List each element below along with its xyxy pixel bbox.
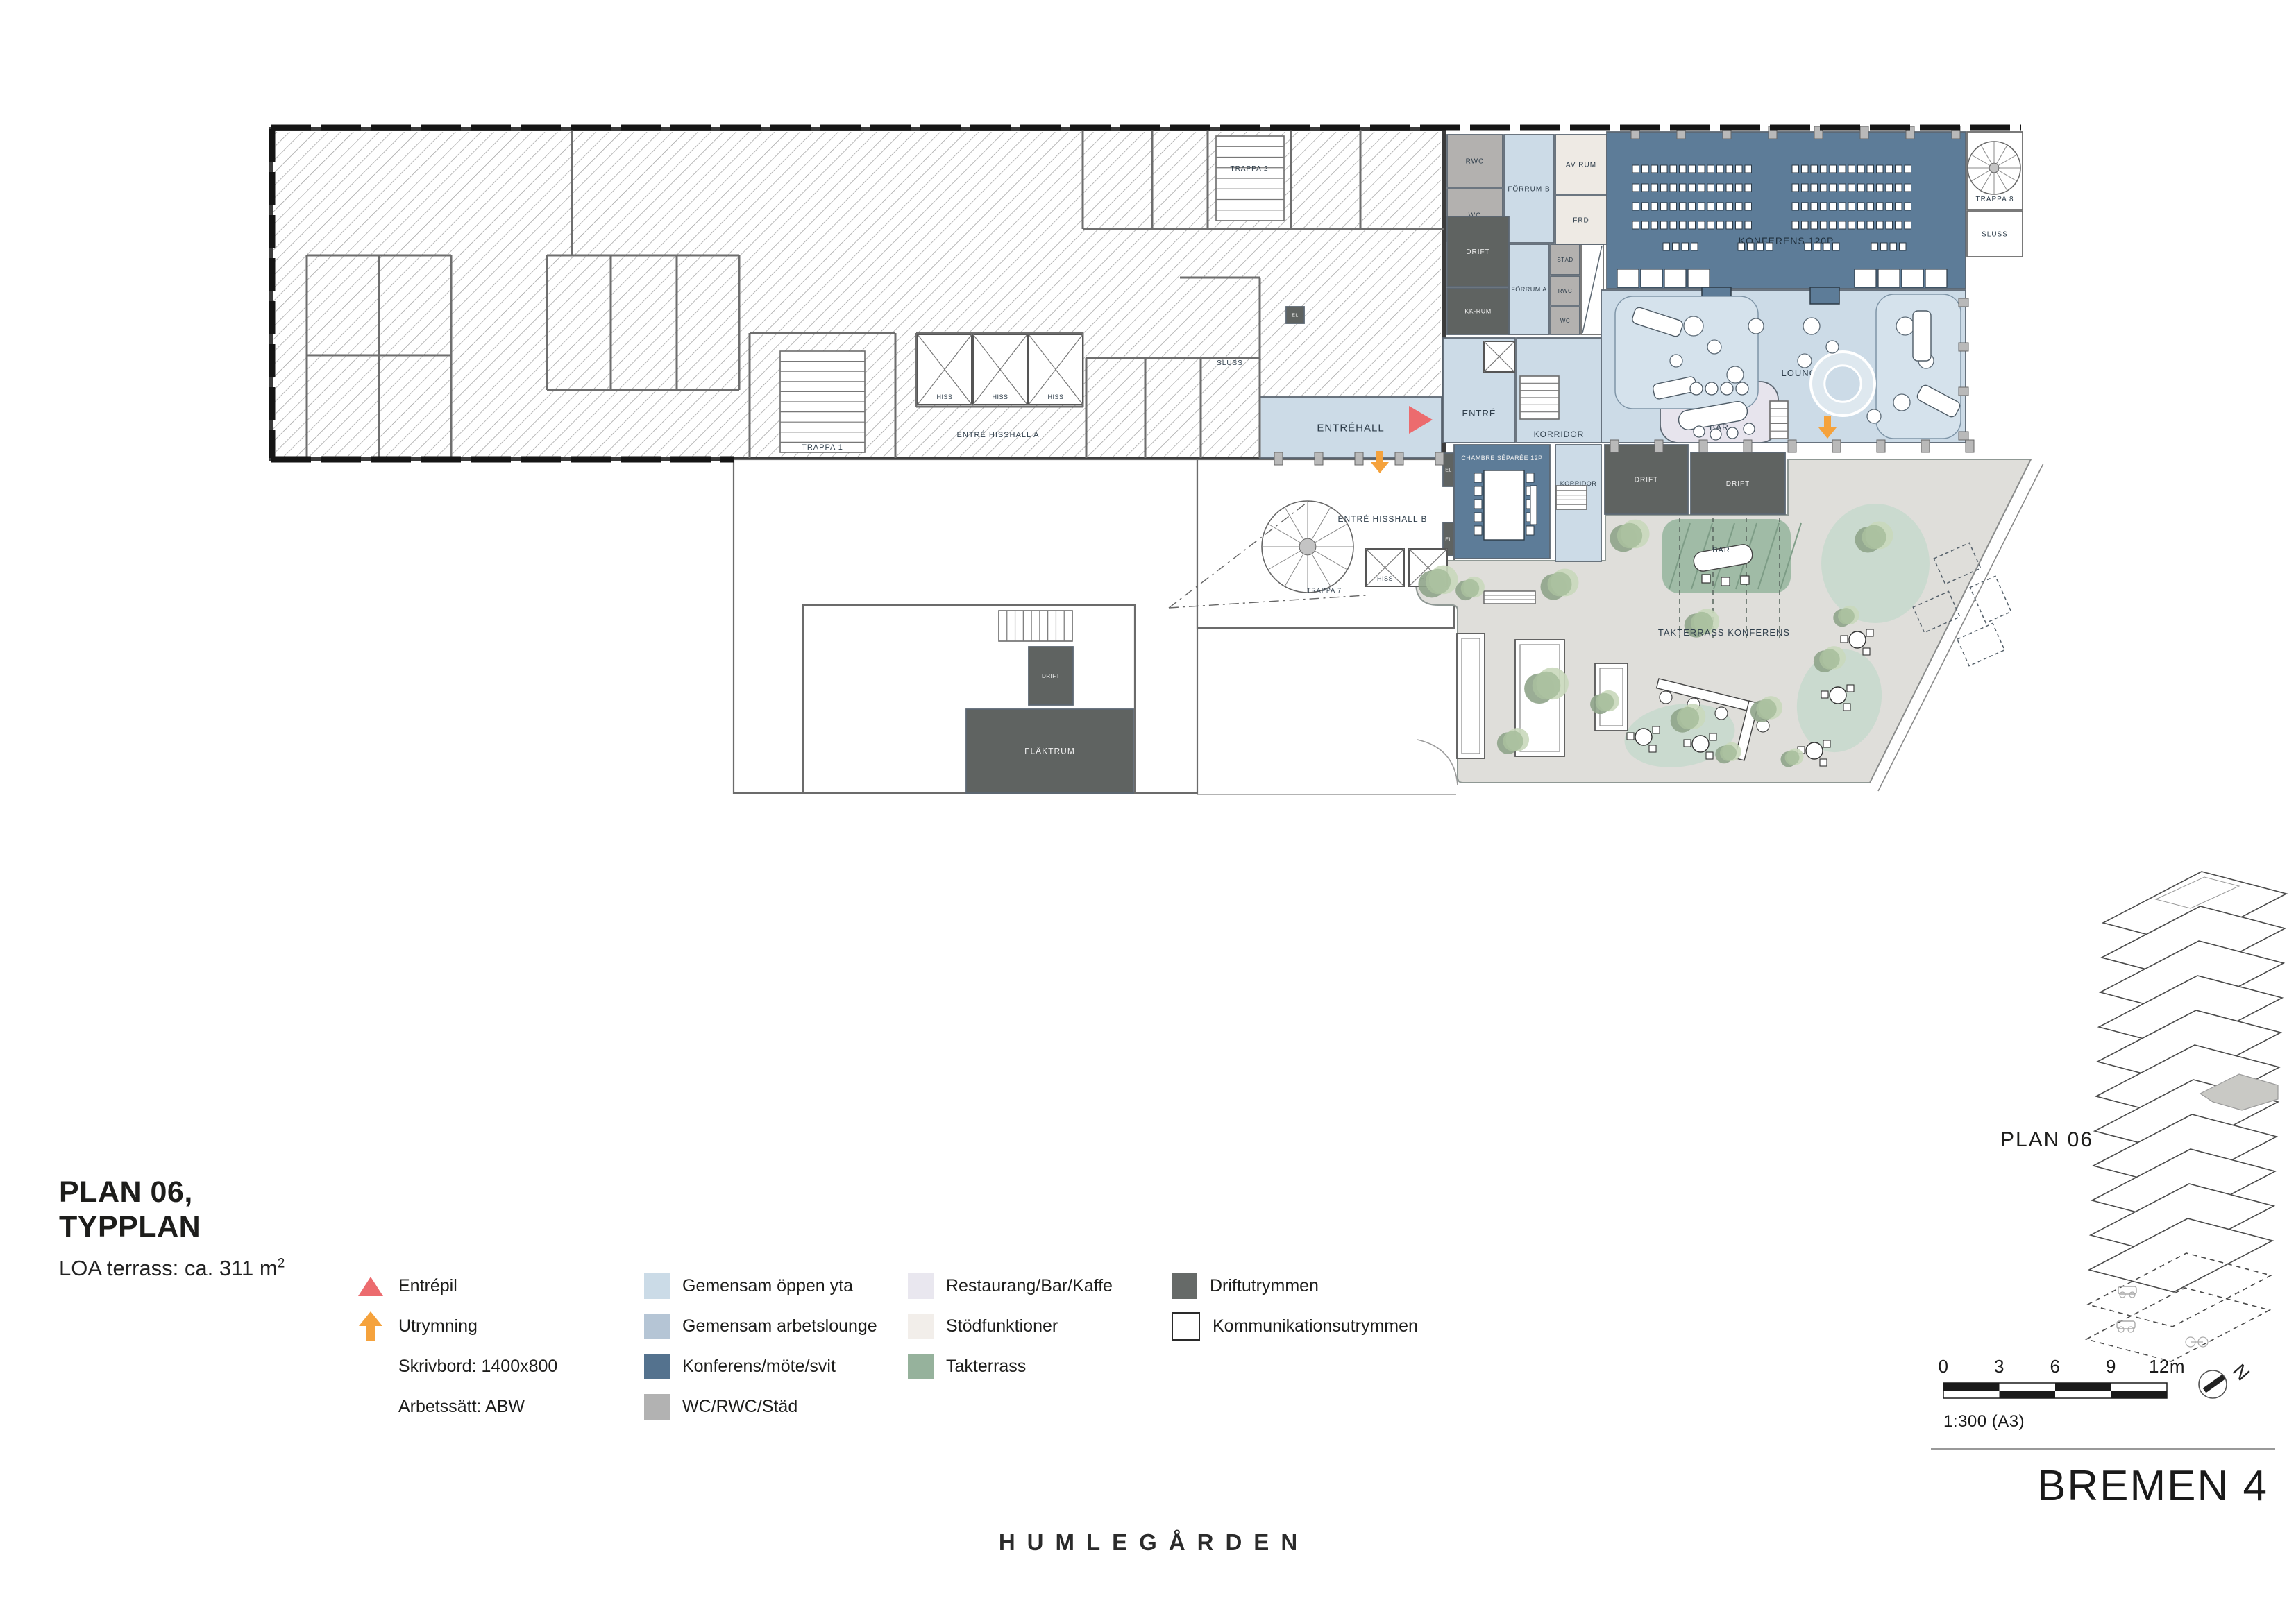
svg-text:WC: WC [1560, 318, 1570, 324]
legend-item-label: Konferens/möte/svit [682, 1357, 836, 1377]
building-stack: PLAN 06 [2000, 872, 2286, 1361]
svg-text:N: N [2229, 1360, 2254, 1385]
svg-text:RWC: RWC [1466, 158, 1485, 166]
svg-text:6: 6 [2050, 1356, 2061, 1377]
svg-text:ENTRÉHALL: ENTRÉHALL [1317, 422, 1384, 434]
legend-categories-3: DriftutrymmenKommunikationsutrymmen [1172, 1266, 1418, 1346]
legend-swatch [908, 1314, 934, 1339]
project-title: BREMEN 4 [2037, 1461, 2268, 1511]
title-block: PLAN 06, TYPPLAN LOA terrass: ca. 311 m2 [59, 1175, 285, 1281]
legend-item: Restaurang/Bar/Kaffe [908, 1266, 1113, 1306]
svg-text:HISS: HISS [1047, 393, 1063, 400]
svg-text:FÖRRUM B: FÖRRUM B [1508, 185, 1550, 194]
legend-item: WC/RWC/Städ [644, 1386, 877, 1427]
svg-text:SLUSS: SLUSS [1217, 359, 1243, 367]
svg-text:TRAPPA 2: TRAPPA 2 [1230, 165, 1268, 173]
svg-text:BAR: BAR [1712, 546, 1730, 554]
svg-text:ENTRÉ HISSHALL B: ENTRÉ HISSHALL B [1338, 513, 1428, 524]
legend-item: Driftutrymmen [1172, 1266, 1418, 1306]
north-arrow: N [2199, 1360, 2254, 1398]
chambre-table [1474, 470, 1537, 540]
plan-sheet: ENTRÉHALLENTRÉKORRIDORFÖRRUM BFÖRRUM ARW… [0, 0, 2296, 1623]
svg-text:EL: EL [1292, 313, 1299, 318]
legend-icon [355, 1391, 386, 1422]
page-title: PLAN 06, TYPPLAN [59, 1175, 285, 1245]
legend-item-label: Takterrass [946, 1357, 1026, 1377]
legend-swatch [644, 1273, 670, 1299]
legend-annotations: EntrépilUtrymningSkrivbord: 1400x800Arbe… [355, 1266, 557, 1427]
brand-logo: HUMLEGÅRDEN [0, 1529, 2296, 1556]
svg-text:DRIFT: DRIFT [1466, 248, 1489, 256]
svg-text:STÄD: STÄD [1557, 257, 1573, 263]
legend-item: Konferens/möte/svit [644, 1346, 877, 1386]
svg-text:TRAPPA 1: TRAPPA 1 [802, 443, 843, 452]
legend-item-label: Restaurang/Bar/Kaffe [946, 1276, 1113, 1296]
legend-item: Skrivbord: 1400x800 [355, 1346, 557, 1386]
legend-item-label: Utrymning [398, 1316, 478, 1336]
svg-text:TAKTERRASS KONFERENS: TAKTERRASS KONFERENS [1658, 627, 1790, 638]
svg-text:PLAN 06: PLAN 06 [2000, 1128, 2093, 1151]
svg-text:EL: EL [1445, 537, 1452, 542]
svg-text:FÖRRUM A: FÖRRUM A [1511, 286, 1547, 293]
legend-item: Arbetssätt: ABW [355, 1386, 557, 1427]
legend-item-label: WC/RWC/Städ [682, 1397, 797, 1417]
svg-text:AV RUM: AV RUM [1566, 162, 1596, 169]
exit-arrow-icon [357, 1310, 385, 1342]
svg-text:RWC: RWC [1558, 288, 1572, 294]
legend-item: Gemensam öppen yta [644, 1266, 877, 1306]
svg-text:HISS: HISS [1377, 575, 1393, 582]
svg-text:3: 3 [1994, 1356, 2004, 1377]
legend-item-label: Driftutrymmen [1210, 1276, 1319, 1296]
legend-item-label: Stödfunktioner [946, 1316, 1058, 1336]
legend-categories-2: Restaurang/Bar/KaffeStödfunktionerTakter… [908, 1266, 1113, 1386]
legend-item: Kommunikationsutrymmen [1172, 1306, 1418, 1346]
legend-item-label: Gemensam arbetslounge [682, 1316, 877, 1336]
legend-icon [355, 1271, 386, 1301]
svg-text:HISS: HISS [992, 393, 1008, 400]
legend-swatch [1172, 1273, 1197, 1299]
svg-text:DRIFT: DRIFT [1726, 480, 1750, 488]
svg-text:KK-RUM: KK-RUM [1464, 308, 1492, 315]
svg-text:ENTRÉ HISSHALL A: ENTRÉ HISSHALL A [957, 430, 1040, 439]
legend-item: Gemensam arbetslounge [644, 1306, 877, 1346]
svg-text:CHAMBRE SÉPARÉE 12P: CHAMBRE SÉPARÉE 12P [1461, 454, 1542, 461]
stack-floor [2086, 1288, 2270, 1361]
legend-item: Utrymning [355, 1306, 557, 1346]
svg-text:TRAPPA 8: TRAPPA 8 [1975, 196, 2014, 203]
legend-swatch [908, 1354, 934, 1379]
loa-area-text: LOA terrass: ca. 311 m2 [59, 1256, 285, 1281]
legend-swatch [644, 1314, 670, 1339]
legend-swatch [1172, 1312, 1200, 1341]
svg-text:EL: EL [1445, 468, 1452, 473]
svg-text:1:300 (A3): 1:300 (A3) [1943, 1412, 2025, 1431]
svg-text:TRAPPA 7: TRAPPA 7 [1307, 587, 1342, 594]
legend-item-label: Gemensam öppen yta [682, 1276, 853, 1296]
floor-plan-drawing: ENTRÉHALLENTRÉKORRIDORFÖRRUM BFÖRRUM ARW… [0, 0, 2296, 1623]
svg-text:12m: 12m [2149, 1356, 2185, 1377]
svg-text:SLUSS: SLUSS [1982, 231, 2008, 239]
legend-icon [355, 1311, 386, 1341]
svg-text:DRIFT: DRIFT [1635, 477, 1658, 484]
legend-item: Takterrass [908, 1346, 1113, 1386]
legend-item: Stödfunktioner [908, 1306, 1113, 1346]
legend-swatch [644, 1394, 670, 1420]
legend-item-label: Skrivbord: 1400x800 [398, 1357, 557, 1377]
legend-item-label: Arbetssätt: ABW [398, 1397, 525, 1417]
svg-text:0: 0 [1939, 1356, 1949, 1377]
legend-swatch [644, 1354, 670, 1379]
svg-text:FLÄKTRUM: FLÄKTRUM [1024, 747, 1075, 756]
svg-text:DRIFT: DRIFT [1042, 673, 1060, 679]
legend-categories-1: Gemensam öppen ytaGemensam arbetsloungeK… [644, 1266, 877, 1427]
legend-swatch [908, 1273, 934, 1299]
svg-text:KORRIDOR: KORRIDOR [1534, 430, 1585, 439]
svg-text:FRD: FRD [1573, 217, 1589, 225]
legend-item-label: Kommunikationsutrymmen [1213, 1316, 1418, 1336]
legend-icon [355, 1351, 386, 1382]
legend-item: Entrépil [355, 1266, 557, 1306]
scale-bar: 036912m1:300 (A3) [1939, 1356, 2186, 1431]
svg-text:HISS: HISS [936, 393, 952, 400]
entry-triangle-icon [357, 1273, 385, 1298]
svg-text:9: 9 [2106, 1356, 2116, 1377]
svg-text:ENTRÉ: ENTRÉ [1462, 408, 1496, 418]
legend-item-label: Entrépil [398, 1276, 457, 1296]
